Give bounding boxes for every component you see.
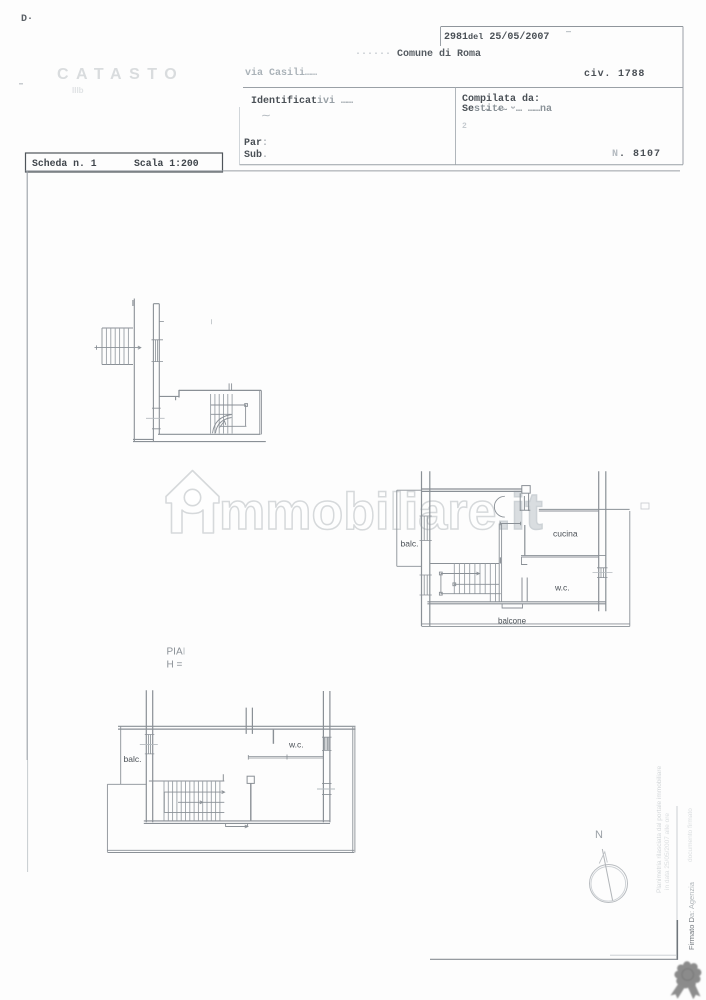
svg-text:w.c.: w.c. (554, 583, 570, 593)
svg-text:2981del 25/05/2007: 2981del 25/05/2007 (444, 31, 549, 43)
svg-text:Scheda n. 1: Scheda n. 1 (32, 158, 97, 169)
svg-text:via Casili……: via Casili…… (245, 67, 317, 79)
svg-text:Identificativi ……: Identificativi …… (251, 95, 353, 107)
svg-text:CATASTO: CATASTO (57, 66, 184, 83)
svg-text:N. 8107: N. 8107 (612, 149, 661, 160)
svg-text:Par:: Par: (244, 138, 268, 149)
svg-text:H =: H = (167, 660, 183, 671)
svg-text:PIAI: PIAI (167, 647, 186, 658)
svg-text:civ. 1788: civ. 1788 (584, 68, 645, 80)
svg-text:······ Comune di Roma: ······ Comune di Roma (355, 48, 481, 60)
svg-text:IIIb: IIIb (72, 86, 84, 95)
svg-text:balcone: balcone (498, 617, 527, 626)
svg-text:w.c.: w.c. (288, 740, 304, 750)
svg-text:balc.: balc. (124, 754, 142, 764)
svg-text:cucina: cucina (553, 529, 578, 539)
svg-text:N: N (595, 829, 603, 841)
svg-text:2: 2 (462, 122, 467, 131)
svg-text:Sest̴it̴e̴ ᵕ… ……na: Sest̴it̴e̴ ᵕ… ……na (462, 103, 552, 115)
svg-text:D·: D· (21, 14, 33, 25)
svg-text:Planimetria rilasciata dal por: Planimetria rilasciata dal portale immob… (656, 765, 663, 893)
svg-text:⁓: ⁓ (262, 112, 270, 121)
svg-text:in data 25/05/2007 alle ore: in data 25/05/2007 alle ore (664, 813, 671, 890)
svg-text:Sub.: Sub. (244, 149, 268, 161)
svg-text:Scala 1:200: Scala 1:200 (134, 158, 199, 169)
svg-text:Firmato Da: Agenzia: Firmato Da: Agenzia (687, 881, 696, 950)
svg-text:balc.: balc. (401, 539, 419, 549)
svg-text:documento firmato: documento firmato (687, 808, 694, 862)
